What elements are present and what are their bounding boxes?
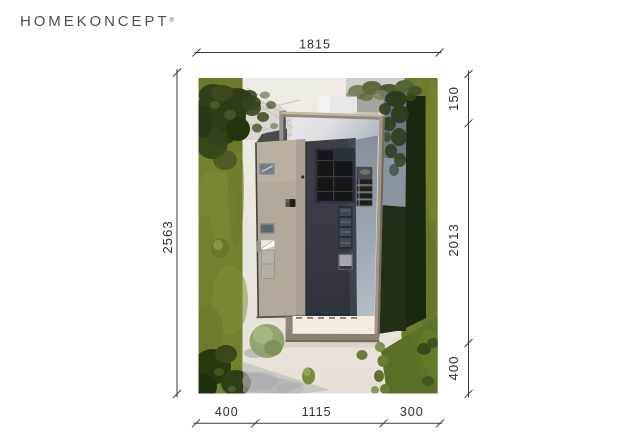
svg-text:300: 300 [400,405,424,419]
svg-text:1115: 1115 [302,405,332,419]
svg-text:400: 400 [215,405,239,419]
svg-text:2013: 2013 [446,223,461,256]
svg-text:2563: 2563 [160,220,175,253]
svg-text:1815: 1815 [299,37,331,51]
svg-text:150: 150 [446,86,461,111]
svg-text:400: 400 [446,355,461,380]
